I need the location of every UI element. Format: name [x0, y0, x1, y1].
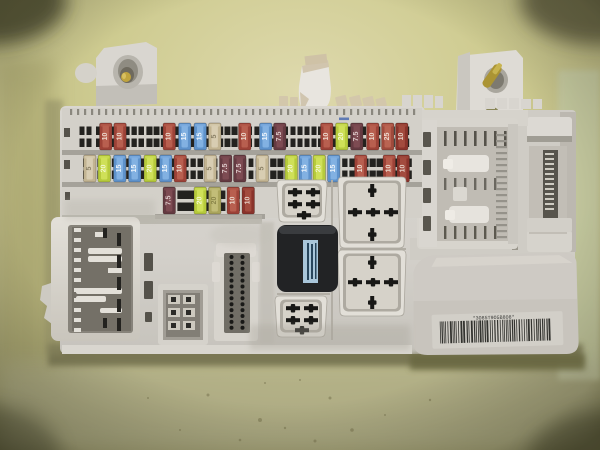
svg-text:10: 10	[230, 197, 237, 205]
svg-text:10: 10	[245, 197, 252, 205]
svg-text:10: 10	[369, 133, 376, 141]
svg-text:15: 15	[197, 133, 204, 141]
svg-text:15: 15	[262, 133, 269, 141]
svg-text:20: 20	[211, 197, 218, 205]
svg-text:7.5: 7.5	[236, 164, 243, 174]
svg-text:5: 5	[259, 166, 266, 170]
svg-text:20: 20	[288, 165, 295, 173]
svg-text:7.5: 7.5	[276, 132, 283, 142]
svg-text:10: 10	[357, 165, 364, 173]
svg-text:7.5: 7.5	[166, 196, 173, 206]
svg-text:10: 10	[117, 133, 124, 141]
svg-text:5: 5	[207, 166, 214, 170]
svg-text:10: 10	[400, 165, 407, 173]
svg-text:5: 5	[211, 134, 218, 138]
svg-text:20: 20	[338, 133, 345, 141]
svg-text:10: 10	[323, 133, 330, 141]
svg-text:10: 10	[177, 165, 184, 173]
svg-text:15: 15	[116, 165, 123, 173]
svg-text:15: 15	[162, 165, 169, 173]
svg-text:20: 20	[101, 165, 108, 173]
svg-text:10: 10	[102, 133, 109, 141]
svg-text:15: 15	[330, 165, 337, 173]
svg-text:15: 15	[131, 165, 138, 173]
svg-text:10: 10	[241, 133, 248, 141]
svg-text:20: 20	[147, 165, 154, 173]
svg-text:5: 5	[86, 166, 93, 170]
svg-text:10: 10	[166, 133, 173, 141]
svg-text:20: 20	[316, 165, 323, 173]
svg-text:7.5: 7.5	[222, 164, 229, 174]
svg-text:15: 15	[181, 133, 188, 141]
svg-text:*3O85T9O5B8O8*: *3O85T9O5B8O8*	[473, 314, 515, 321]
svg-text:25: 25	[384, 133, 391, 141]
svg-text:10: 10	[398, 133, 405, 141]
svg-text:10: 10	[386, 165, 393, 173]
svg-text:7.5: 7.5	[353, 132, 360, 142]
svg-text:15: 15	[302, 165, 309, 173]
svg-text:20: 20	[197, 197, 204, 205]
